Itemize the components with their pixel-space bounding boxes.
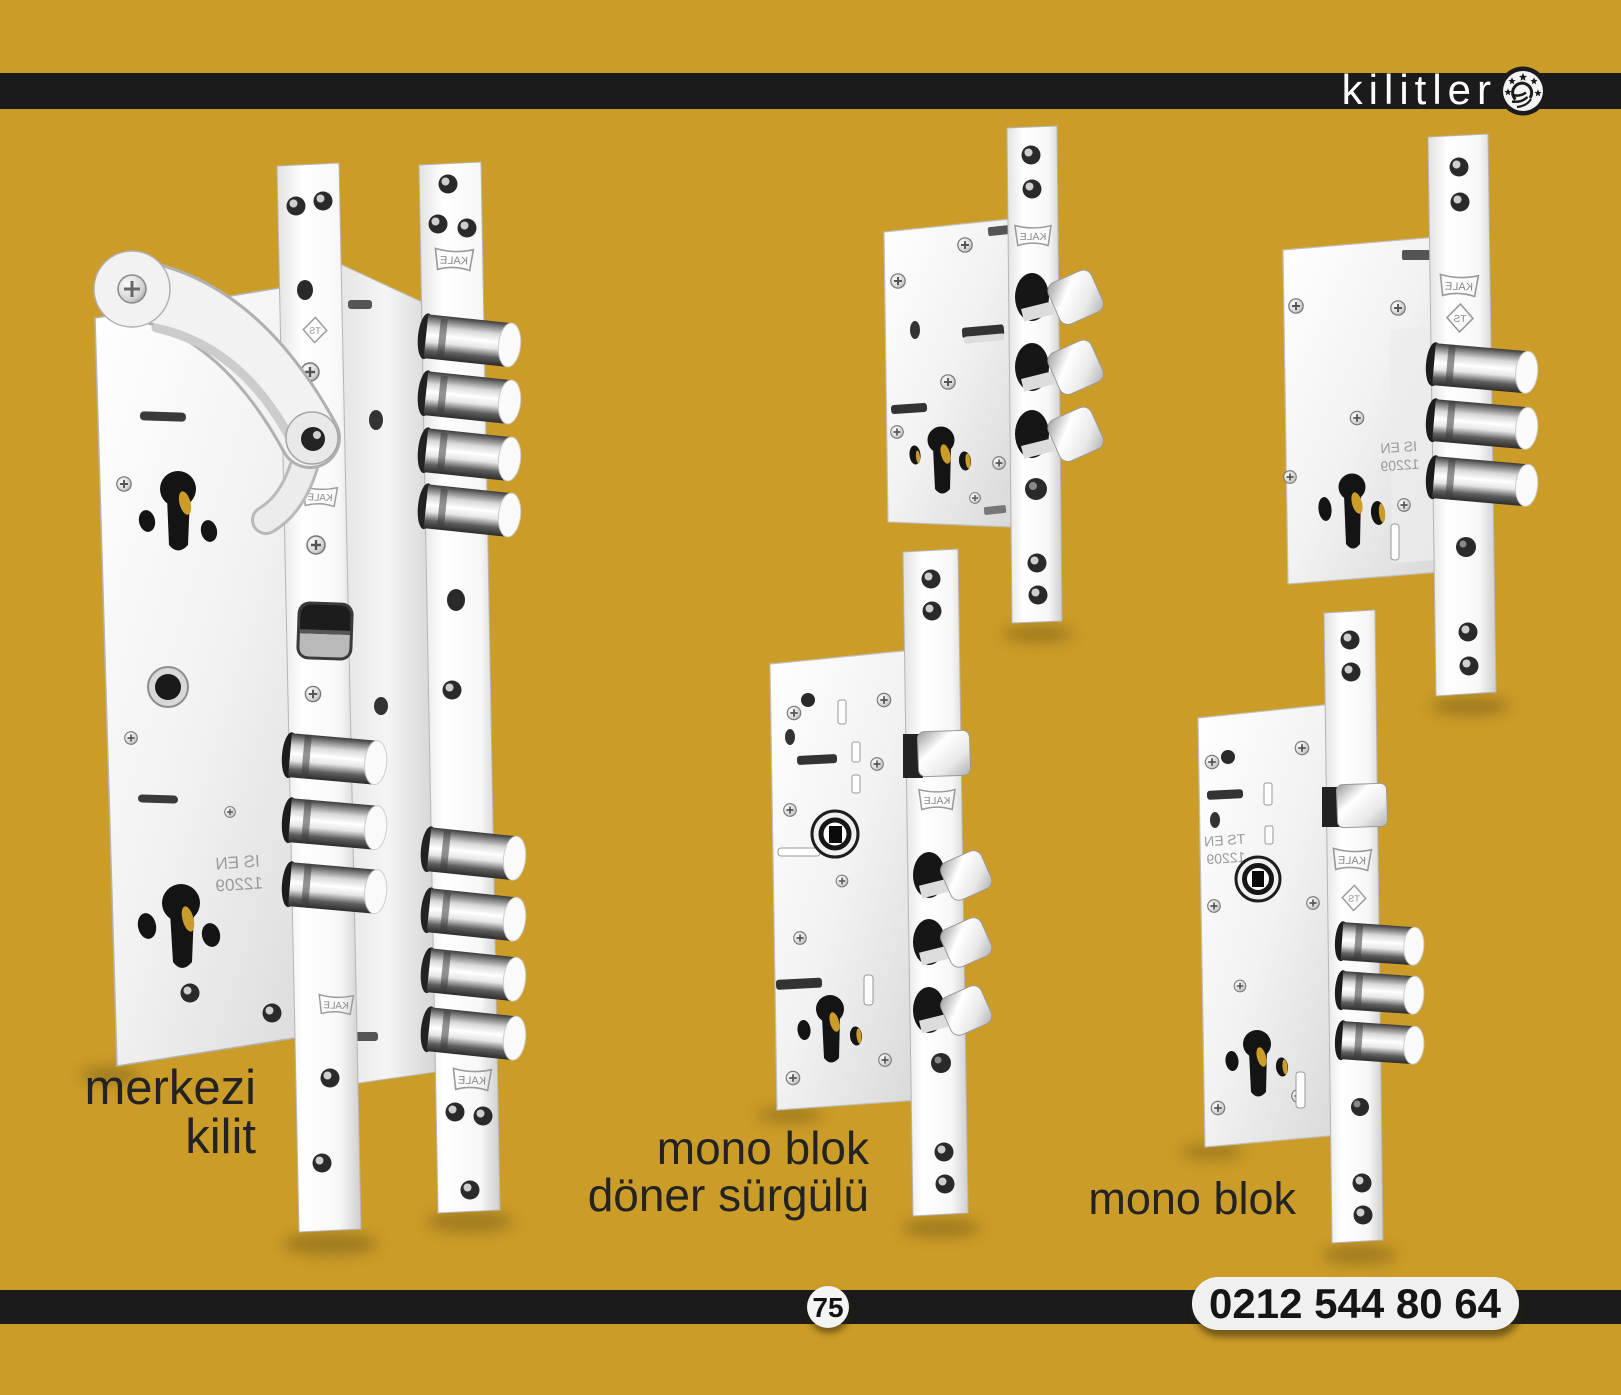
svg-text:IS EN: IS EN	[1380, 438, 1418, 457]
svg-text:12209: 12209	[215, 873, 263, 895]
svg-text:0212 544 80 64: 0212 544 80 64	[1209, 1280, 1502, 1327]
svg-text:75: 75	[812, 1292, 843, 1323]
svg-text:kilit: kilit	[185, 1110, 256, 1164]
svg-text:mono blok: mono blok	[657, 1122, 870, 1174]
svg-text:mono blok: mono blok	[1088, 1173, 1296, 1224]
svg-text:12209: 12209	[1380, 456, 1420, 475]
svg-text:merkezi: merkezi	[84, 1061, 256, 1115]
svg-text:kilitler: kilitler	[1342, 66, 1497, 113]
svg-text:IS EN: IS EN	[215, 851, 261, 873]
svg-text:TS EN: TS EN	[1204, 831, 1246, 850]
svg-text:döner sürgülü: döner sürgülü	[588, 1169, 869, 1221]
